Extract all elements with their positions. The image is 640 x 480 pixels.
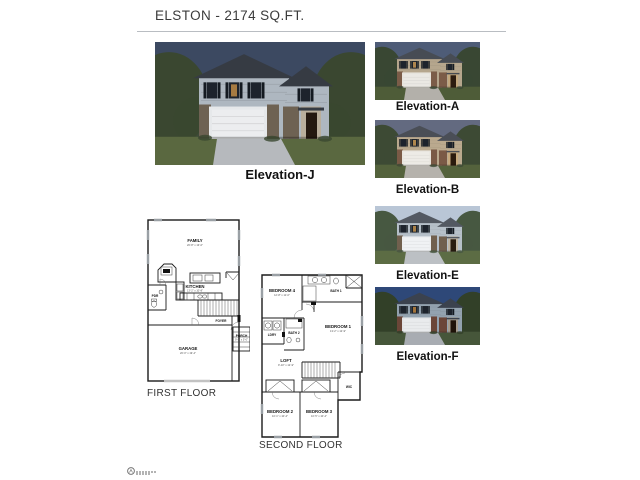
room-bedroom3-dims: 10'-5" x 10'-4": [311, 414, 327, 418]
room-kitchen-label: KITCHEN: [185, 284, 204, 289]
elevation-a-photo: [375, 42, 480, 100]
house-illustration: [375, 287, 480, 345]
house-illustration: [155, 42, 365, 165]
room-bedroom4-label: BEDROOM 4: [269, 288, 296, 293]
room-bedroom1-dims: 13'-2" x 12'-9": [330, 329, 346, 333]
room-kitchen-dims: 13'-2" x 10'-8": [187, 289, 203, 293]
room-bath1-label: BATH 1: [330, 289, 342, 293]
room-porch-dims: 9'-8" x 5'-0": [235, 338, 248, 342]
room-family-label: FAMILY: [187, 238, 202, 243]
elevation-f-photo: [375, 287, 480, 345]
elevation-b-photo: [375, 120, 480, 178]
elevation-a-label: Elevation-A: [375, 101, 480, 113]
room-bedroom2-label: BEDROOM 2: [267, 409, 294, 414]
room-foyer-label: FOYER: [216, 319, 228, 323]
house-illustration: [375, 42, 480, 100]
elevation-j-label: Elevation-J: [175, 167, 385, 182]
room-bedroom4-dims: 12'-8" x 11'-0": [274, 293, 290, 297]
elevation-e-label: Elevation-E: [375, 270, 480, 282]
second-floor-label: SECOND FLOOR: [259, 440, 343, 451]
room-wic-label: WIC: [346, 385, 353, 389]
room-family-dims: 20'-8" x 13'-0": [187, 243, 203, 247]
second-floor-plan: BEDROOM 4 12'-8" x 11'-0" BATH 1 LDRY BA…: [258, 272, 364, 442]
elevation-j-photo: [155, 42, 365, 165]
room-pdr-label: PDR: [152, 294, 159, 298]
title-divider: [137, 31, 506, 32]
room-loft-dims: 9'-10" x 12'-9": [278, 363, 294, 367]
room-ldry-label: LDRY: [268, 333, 277, 337]
room-bath2-label: BATH 2: [288, 331, 300, 335]
house-illustration: [375, 206, 480, 264]
room-bedroom2-dims: 10'-1" x 10'-4": [272, 414, 288, 418]
elevation-e-photo: [375, 206, 480, 264]
elevation-f-label: Elevation-F: [375, 351, 480, 363]
house-illustration: [375, 120, 480, 178]
first-floor-drawing: FAMILY 20'-8" x 13'-0" KITCHEN 13'-2" x …: [146, 218, 250, 388]
room-garage-label: GARAGE: [179, 346, 198, 351]
mls-watermark-icon: [126, 464, 164, 478]
second-floor-drawing: BEDROOM 4 12'-8" x 11'-0" BATH 1 LDRY BA…: [258, 272, 364, 442]
room-bedroom1-label: BEDROOM 1: [325, 324, 352, 329]
first-floor-plan: FAMILY 20'-8" x 13'-0" KITCHEN 13'-2" x …: [146, 218, 250, 388]
elevation-b-label: Elevation-B: [375, 184, 480, 196]
first-floor-label: FIRST FLOOR: [147, 388, 216, 399]
room-garage-dims: 20'-0" x 19'-4": [180, 351, 196, 355]
listing-flyer-page: ELSTON - 2174 SQ.FT. Elevation-J Elevati…: [0, 0, 640, 480]
room-porch-label: PORCH: [236, 334, 248, 338]
room-loft-label: LOFT: [280, 358, 292, 363]
room-bedroom3-label: BEDROOM 3: [306, 409, 333, 414]
page-title: ELSTON - 2174 SQ.FT.: [155, 8, 305, 23]
